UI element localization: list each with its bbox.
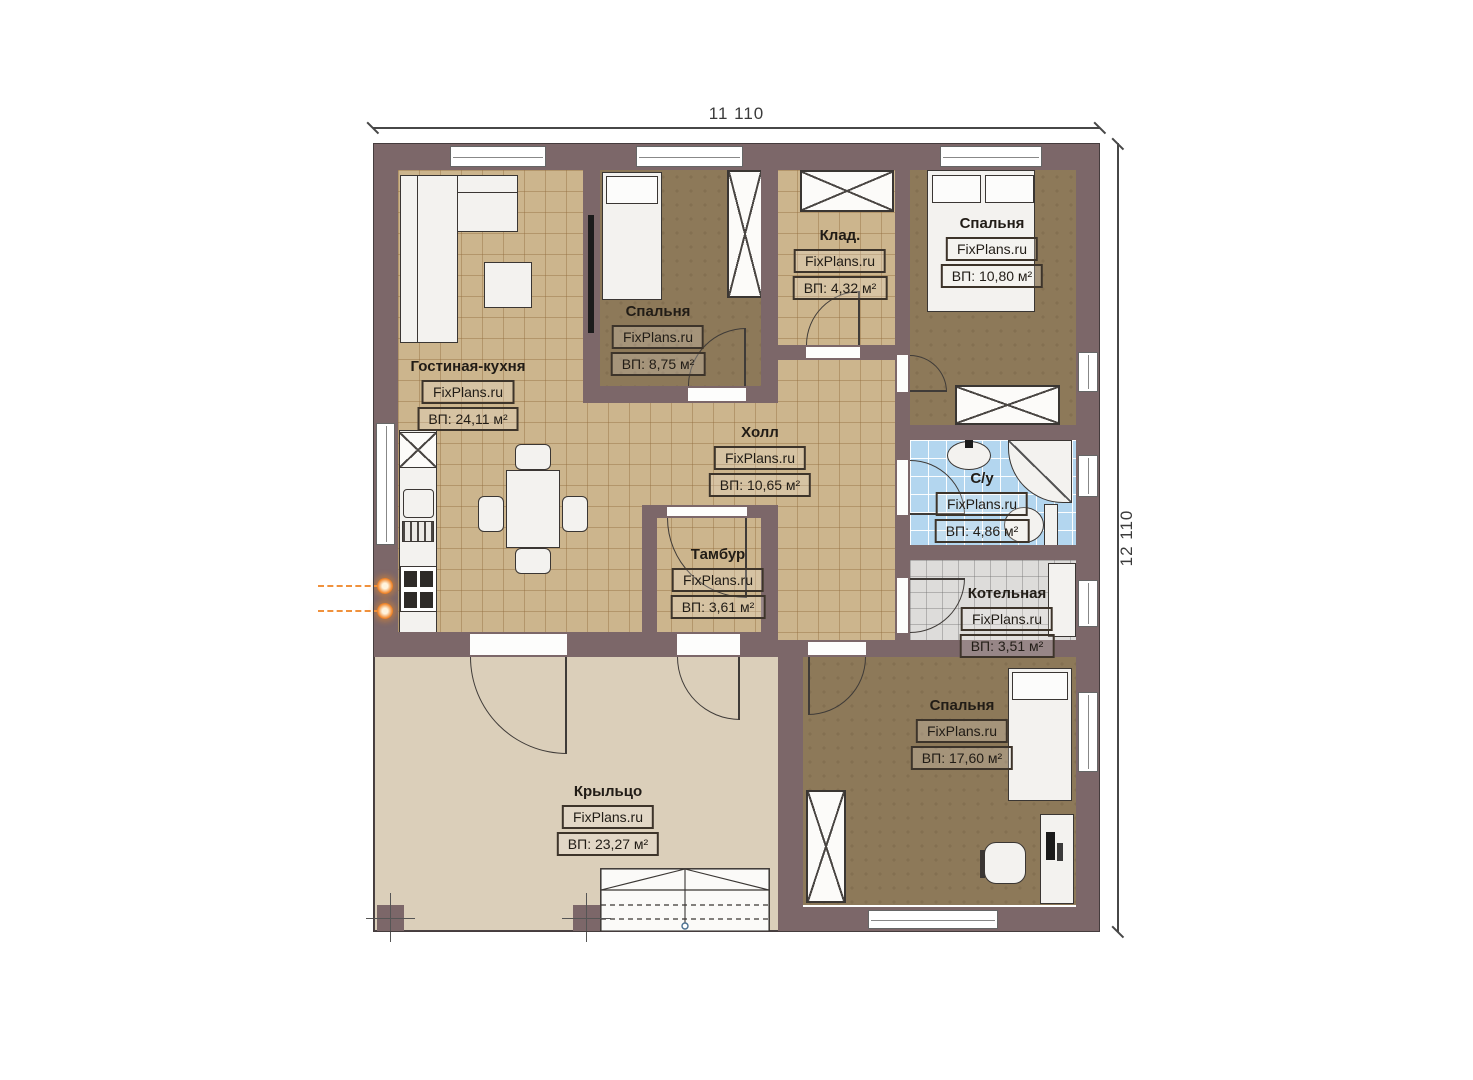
room-name-boiler-room: Котельная	[968, 585, 1047, 602]
wardrobe-storage-icon	[800, 170, 894, 212]
office-chair-icon	[984, 842, 1026, 884]
door-leaf-living-porch	[565, 657, 567, 754]
dimension-width-label: 11 110	[373, 104, 1100, 124]
window-top-bedroom-1	[636, 146, 743, 167]
floor-plan-canvas: 11 110 12 110 Гостиная-кухня FixPlans.ru…	[0, 0, 1473, 1080]
room-name-bedroom-3: Спальня	[930, 697, 995, 714]
monitor-icon	[1046, 832, 1055, 860]
area-box: ВП: 3,51 м²	[960, 634, 1055, 658]
room-label-boiler-room: Котельная FixPlans.ru ВП: 3,51 м²	[960, 585, 1055, 658]
watermark-box: FixPlans.ru	[916, 719, 1008, 743]
room-label-bathroom: С/у FixPlans.ru ВП: 4,86 м²	[935, 470, 1030, 543]
dining-chair-east-icon	[562, 496, 588, 532]
watermark-box: FixPlans.ru	[936, 492, 1028, 516]
area-box: ВП: 4,86 м²	[935, 519, 1030, 543]
door-opening-storage	[806, 347, 860, 358]
door-opening-living-porch	[470, 634, 567, 655]
window-right-bedroom-3	[1078, 692, 1098, 772]
dining-chair-south-icon	[515, 548, 551, 574]
watermark-box: FixPlans.ru	[672, 568, 764, 592]
window-right-bathroom	[1078, 455, 1098, 497]
coffee-table-icon	[484, 262, 532, 308]
area-box: ВП: 24,11 м²	[417, 407, 518, 431]
door-opening-bedroom-3	[808, 642, 866, 655]
room-name-living-kitchen: Гостиная-кухня	[411, 358, 526, 375]
kitchen-sink-icon	[403, 489, 434, 518]
room-label-vestibule: Тамбур FixPlans.ru ВП: 3,61 м²	[671, 546, 766, 619]
area-box: ВП: 4,32 м²	[793, 276, 888, 300]
window-right-boiler	[1078, 580, 1098, 627]
window-top-living	[450, 146, 546, 167]
area-box: ВП: 17,60 м²	[911, 746, 1013, 770]
wall-bedroom-1-bottom	[583, 386, 778, 403]
chair-back-icon	[980, 850, 985, 878]
watermark-box: FixPlans.ru	[961, 607, 1053, 631]
pillow-right-icon	[985, 175, 1034, 203]
door-opening-vestibule	[667, 507, 747, 516]
room-name-bedroom-2: Спальня	[960, 215, 1025, 232]
area-box: ВП: 10,65 м²	[709, 473, 811, 497]
watermark-box: FixPlans.ru	[422, 380, 514, 404]
stairs	[600, 868, 770, 932]
door-opening-bedroom-1	[688, 388, 746, 401]
door-leaf-bedroom-2	[910, 390, 947, 392]
dimension-line-top	[373, 127, 1100, 129]
toilet-tank-icon	[1044, 504, 1058, 546]
window-left-kitchen	[376, 423, 395, 545]
pillow-2-icon	[1012, 672, 1068, 700]
dining-table-icon	[506, 470, 560, 548]
wardrobe-bedroom-1-icon	[727, 170, 763, 298]
wardrobe-bedroom-3-icon	[806, 790, 846, 903]
window-right-bedroom-2	[1078, 352, 1098, 392]
gas-line-1	[318, 585, 380, 587]
watermark-box: FixPlans.ru	[562, 805, 654, 829]
room-label-porch: Крыльцо FixPlans.ru ВП: 23,27 м²	[557, 783, 659, 856]
watermark-box: FixPlans.ru	[946, 237, 1038, 261]
sofa-left-icon	[400, 175, 458, 343]
wall-bathroom-bottom	[895, 545, 1076, 560]
gas-point-1-icon	[377, 578, 393, 594]
window-bottom-bedroom-3	[868, 910, 998, 929]
room-name-porch: Крыльцо	[574, 783, 642, 800]
kitchen-hood-icon	[399, 432, 437, 468]
room-name-storage: Клад.	[820, 227, 861, 244]
door-opening-bathroom	[897, 460, 908, 515]
door-leaf-entrance	[738, 657, 740, 720]
area-box: ВП: 3,61 м²	[671, 595, 766, 619]
gas-line-2	[318, 610, 380, 612]
room-label-bedroom-1: Спальня FixPlans.ru ВП: 8,75 м²	[611, 303, 706, 376]
wall-right-exterior	[1076, 143, 1100, 932]
area-box: ВП: 8,75 м²	[611, 352, 706, 376]
dining-chair-north-icon	[515, 444, 551, 470]
wardrobe-bedroom-2-icon	[955, 385, 1060, 425]
wall-bedroom-2-bottom	[895, 425, 1076, 440]
door-opening-boiler	[897, 578, 908, 633]
window-top-bedroom-2	[940, 146, 1042, 167]
pc-icon	[1057, 843, 1063, 861]
door-leaf-bedroom-1	[744, 328, 746, 386]
room-name-vestibule: Тамбур	[691, 546, 745, 563]
room-label-bedroom-3: Спальня FixPlans.ru ВП: 17,60 м²	[911, 697, 1013, 770]
door-opening-entrance	[677, 634, 740, 655]
watermark-box: FixPlans.ru	[714, 446, 806, 470]
room-label-living-kitchen: Гостиная-кухня FixPlans.ru ВП: 24,11 м²	[411, 358, 526, 431]
area-box: ВП: 23,27 м²	[557, 832, 659, 856]
room-name-bathroom: С/у	[970, 470, 993, 487]
post-axis-v-left	[390, 893, 391, 942]
pillow-icon	[606, 176, 658, 204]
tv-icon	[588, 215, 594, 333]
room-name-hall: Холл	[741, 424, 779, 441]
dining-chair-west-icon	[478, 496, 504, 532]
pillow-left-icon	[932, 175, 981, 203]
room-name-bedroom-1: Спальня	[626, 303, 691, 320]
dishwasher-icon	[402, 521, 434, 542]
watermark-box: FixPlans.ru	[612, 325, 704, 349]
area-box: ВП: 10,80 м²	[941, 264, 1043, 288]
gas-point-2-icon	[377, 603, 393, 619]
door-leaf-boiler	[910, 578, 965, 580]
door-opening-bedroom-2	[897, 355, 908, 392]
room-label-storage: Клад. FixPlans.ru ВП: 4,32 м²	[793, 227, 888, 300]
wall-bedroom-3-left	[778, 640, 803, 932]
door-leaf-bedroom-3	[808, 657, 810, 715]
room-label-hall: Холл FixPlans.ru ВП: 10,65 м²	[709, 424, 811, 497]
dimension-height-label: 12 110	[1117, 448, 1137, 628]
stove-icon	[400, 566, 437, 612]
wall-vestibule-left	[642, 505, 657, 632]
watermark-box: FixPlans.ru	[794, 249, 886, 273]
room-label-bedroom-2: Спальня FixPlans.ru ВП: 10,80 м²	[941, 215, 1043, 288]
post-axis-v-right	[586, 893, 587, 942]
